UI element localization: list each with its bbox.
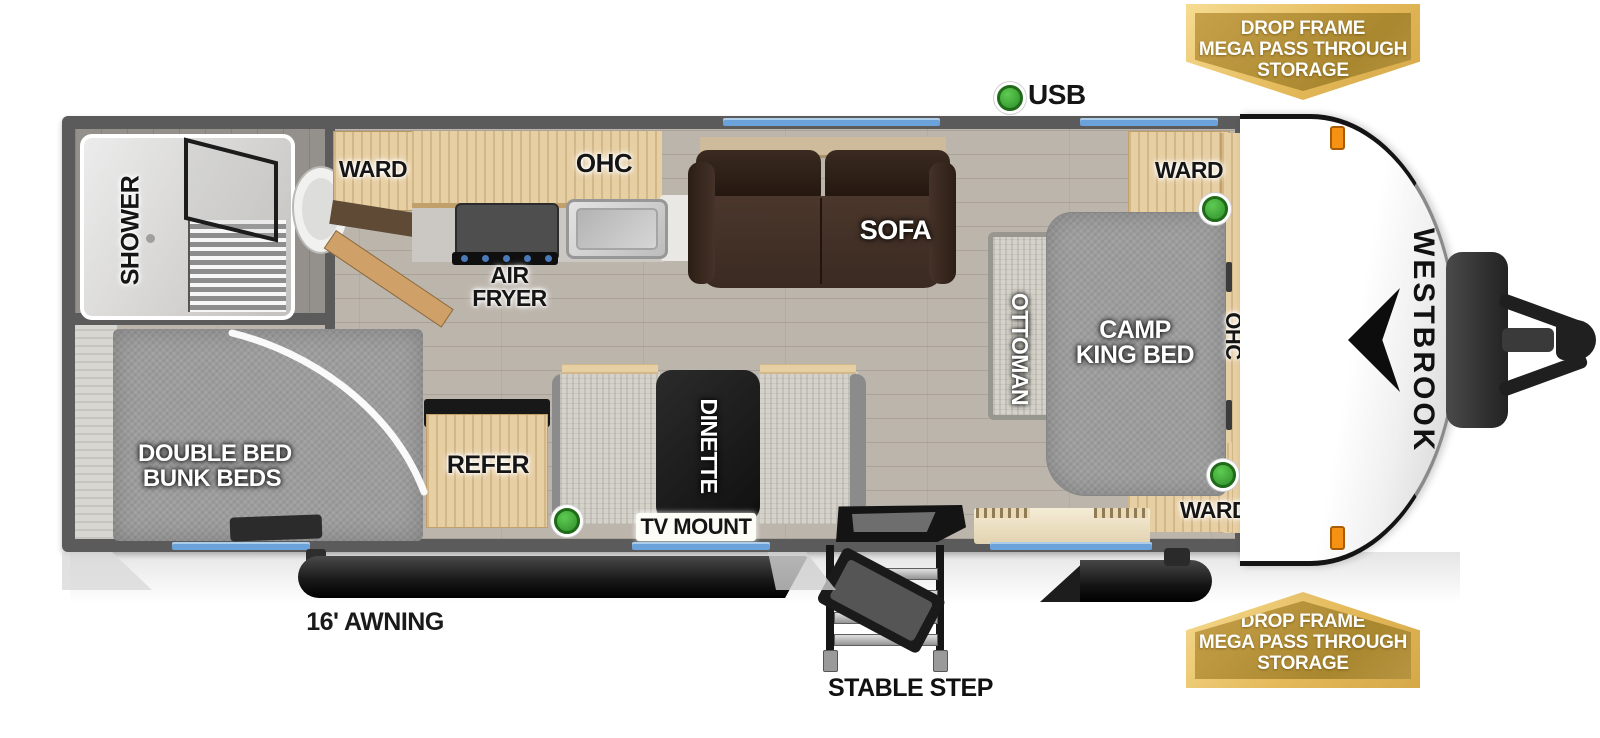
awning-tube bbox=[298, 556, 808, 598]
usb-indicator-dot bbox=[1202, 196, 1228, 222]
entry-threshold-step bbox=[974, 508, 1150, 544]
threshold-tread-right bbox=[1094, 508, 1148, 518]
shower-accordion-door bbox=[188, 220, 286, 312]
usb-indicator-dot bbox=[1210, 462, 1236, 488]
hitch-propane-cover bbox=[1446, 252, 1508, 428]
badge-bottom-inner: DROP FRAME MEGA PASS THROUGH STORAGE bbox=[1195, 601, 1411, 679]
shower-label: SHOWER bbox=[117, 171, 146, 291]
window bbox=[1080, 118, 1218, 126]
entry-door-inner bbox=[852, 512, 940, 532]
front-wardrobe-top-label: WARD bbox=[1146, 157, 1232, 184]
sofa-label: SOFA bbox=[848, 215, 943, 246]
badge-bottom-line3: STORAGE bbox=[1257, 653, 1349, 674]
sink-basin bbox=[576, 208, 658, 250]
threshold-tread-left bbox=[976, 508, 1030, 518]
cooktop-knob bbox=[545, 255, 552, 262]
dinette-label: DINETTE bbox=[694, 386, 722, 506]
cooktop-knob bbox=[461, 255, 468, 262]
bunk-headboard-panel bbox=[75, 325, 117, 539]
window bbox=[723, 118, 940, 126]
tv-mount-label: TV MOUNT bbox=[636, 513, 756, 541]
floorplan-canvas: DROP FRAME MEGA PASS THROUGH STORAGE DRO… bbox=[0, 0, 1600, 738]
badge-top: DROP FRAME MEGA PASS THROUGH STORAGE bbox=[1186, 4, 1420, 100]
step-foot-right bbox=[933, 650, 948, 672]
badge-top-line1: DROP FRAME bbox=[1241, 18, 1365, 39]
stable-step-label: STABLE STEP bbox=[828, 674, 978, 703]
drop-frame-storage-tube bbox=[1080, 560, 1212, 602]
hitch-jack-handle bbox=[1502, 328, 1554, 352]
sofa-seat-seam bbox=[820, 198, 822, 284]
shower-drain bbox=[146, 234, 155, 243]
bunk-step-board bbox=[230, 514, 323, 541]
air-fryer-label-2: FRYER bbox=[462, 285, 557, 312]
kitchen-sink bbox=[566, 199, 668, 259]
clearance-light-bottom bbox=[1330, 526, 1345, 550]
cabinet-handle bbox=[1226, 400, 1232, 430]
dinette-bench-left-trim bbox=[562, 364, 658, 374]
usb-indicator-dot bbox=[554, 508, 580, 534]
ottoman-label: OTTOMAN bbox=[1005, 289, 1033, 409]
dinette-arm-right bbox=[850, 374, 866, 524]
badge-top-line3: STORAGE bbox=[1257, 60, 1349, 81]
badge-bottom-line2: MEGA PASS THROUGH bbox=[1199, 632, 1407, 653]
usb-legend-label: USB bbox=[1028, 79, 1088, 111]
westbrook-brand-text: WESTBROOK bbox=[1406, 216, 1440, 466]
cooktop-knob bbox=[524, 255, 531, 262]
badge-bottom-line1: DROP FRAME bbox=[1241, 611, 1365, 632]
badge-top-inner: DROP FRAME MEGA PASS THROUGH STORAGE bbox=[1195, 13, 1411, 91]
refrigerator-label: REFER bbox=[433, 451, 543, 480]
camp-king-bed-label-2: KING BED bbox=[1070, 341, 1200, 370]
step-foot-left bbox=[823, 650, 838, 672]
kitchen-ohc-label: OHC bbox=[559, 148, 649, 179]
dinette-bench-right bbox=[758, 372, 858, 524]
sofa-armrest-left bbox=[688, 162, 715, 284]
bunk-bed-mattress bbox=[113, 329, 423, 541]
shower-enclosure bbox=[80, 134, 295, 320]
dinette-bench-right-trim bbox=[760, 364, 856, 374]
usb-legend-dot bbox=[997, 85, 1023, 111]
bunk-beds-label-2: BUNK BEDS bbox=[142, 465, 282, 493]
cooktop-knob bbox=[503, 255, 510, 262]
window bbox=[172, 542, 310, 550]
window bbox=[990, 542, 1152, 550]
clearance-light-top bbox=[1330, 126, 1345, 150]
bath-wardrobe-label: WARD bbox=[333, 156, 413, 183]
awning-label: 16' AWNING bbox=[300, 608, 450, 637]
frame-bracket bbox=[1164, 548, 1190, 566]
badge-top-line2: MEGA PASS THROUGH bbox=[1199, 39, 1407, 60]
badge-bottom: DROP FRAME MEGA PASS THROUGH STORAGE bbox=[1186, 592, 1420, 688]
bunk-beds-label-1: DOUBLE BED bbox=[138, 440, 286, 468]
cooktop-knob bbox=[482, 255, 489, 262]
window bbox=[632, 542, 770, 550]
dinette-bench-left bbox=[560, 372, 660, 524]
hitch-coupler bbox=[1556, 320, 1596, 360]
